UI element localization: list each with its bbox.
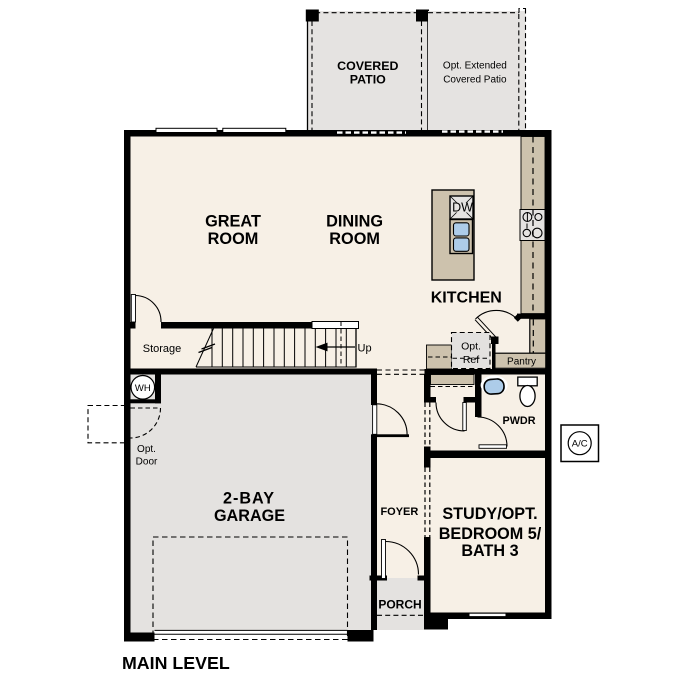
svg-text:PATIO: PATIO	[350, 73, 386, 87]
svg-text:Door: Door	[136, 457, 158, 468]
svg-text:GREAT: GREAT	[205, 212, 261, 230]
svg-text:2-BAY: 2-BAY	[223, 490, 275, 508]
svg-text:DW: DW	[452, 201, 473, 215]
svg-text:STUDY/OPT.: STUDY/OPT.	[442, 505, 537, 523]
svg-text:GARAGE: GARAGE	[214, 507, 285, 525]
svg-text:Storage: Storage	[143, 343, 182, 355]
svg-text:ROOM: ROOM	[208, 230, 259, 248]
svg-text:Covered Patio: Covered Patio	[443, 75, 507, 86]
svg-text:PWDR: PWDR	[503, 415, 536, 427]
svg-text:BEDROOM 5/: BEDROOM 5/	[439, 525, 542, 543]
svg-text:MAIN LEVEL: MAIN LEVEL	[122, 653, 230, 673]
svg-text:WH: WH	[135, 383, 151, 394]
svg-text:Pantry: Pantry	[507, 356, 536, 367]
svg-text:Opt.: Opt.	[137, 444, 156, 455]
svg-text:COVERED: COVERED	[337, 59, 398, 73]
svg-text:KITCHEN: KITCHEN	[431, 289, 502, 306]
svg-text:Up: Up	[358, 343, 372, 355]
svg-text:FOYER: FOYER	[380, 506, 418, 518]
svg-text:DINING: DINING	[326, 212, 383, 230]
svg-text:Opt. Extended: Opt. Extended	[443, 61, 507, 72]
svg-text:BATH 3: BATH 3	[461, 542, 518, 560]
svg-text:Ref: Ref	[463, 354, 479, 366]
svg-text:PORCH: PORCH	[378, 598, 421, 612]
svg-text:A/C: A/C	[572, 439, 588, 450]
svg-text:Opt.: Opt.	[461, 341, 481, 353]
svg-text:ROOM: ROOM	[329, 230, 380, 248]
